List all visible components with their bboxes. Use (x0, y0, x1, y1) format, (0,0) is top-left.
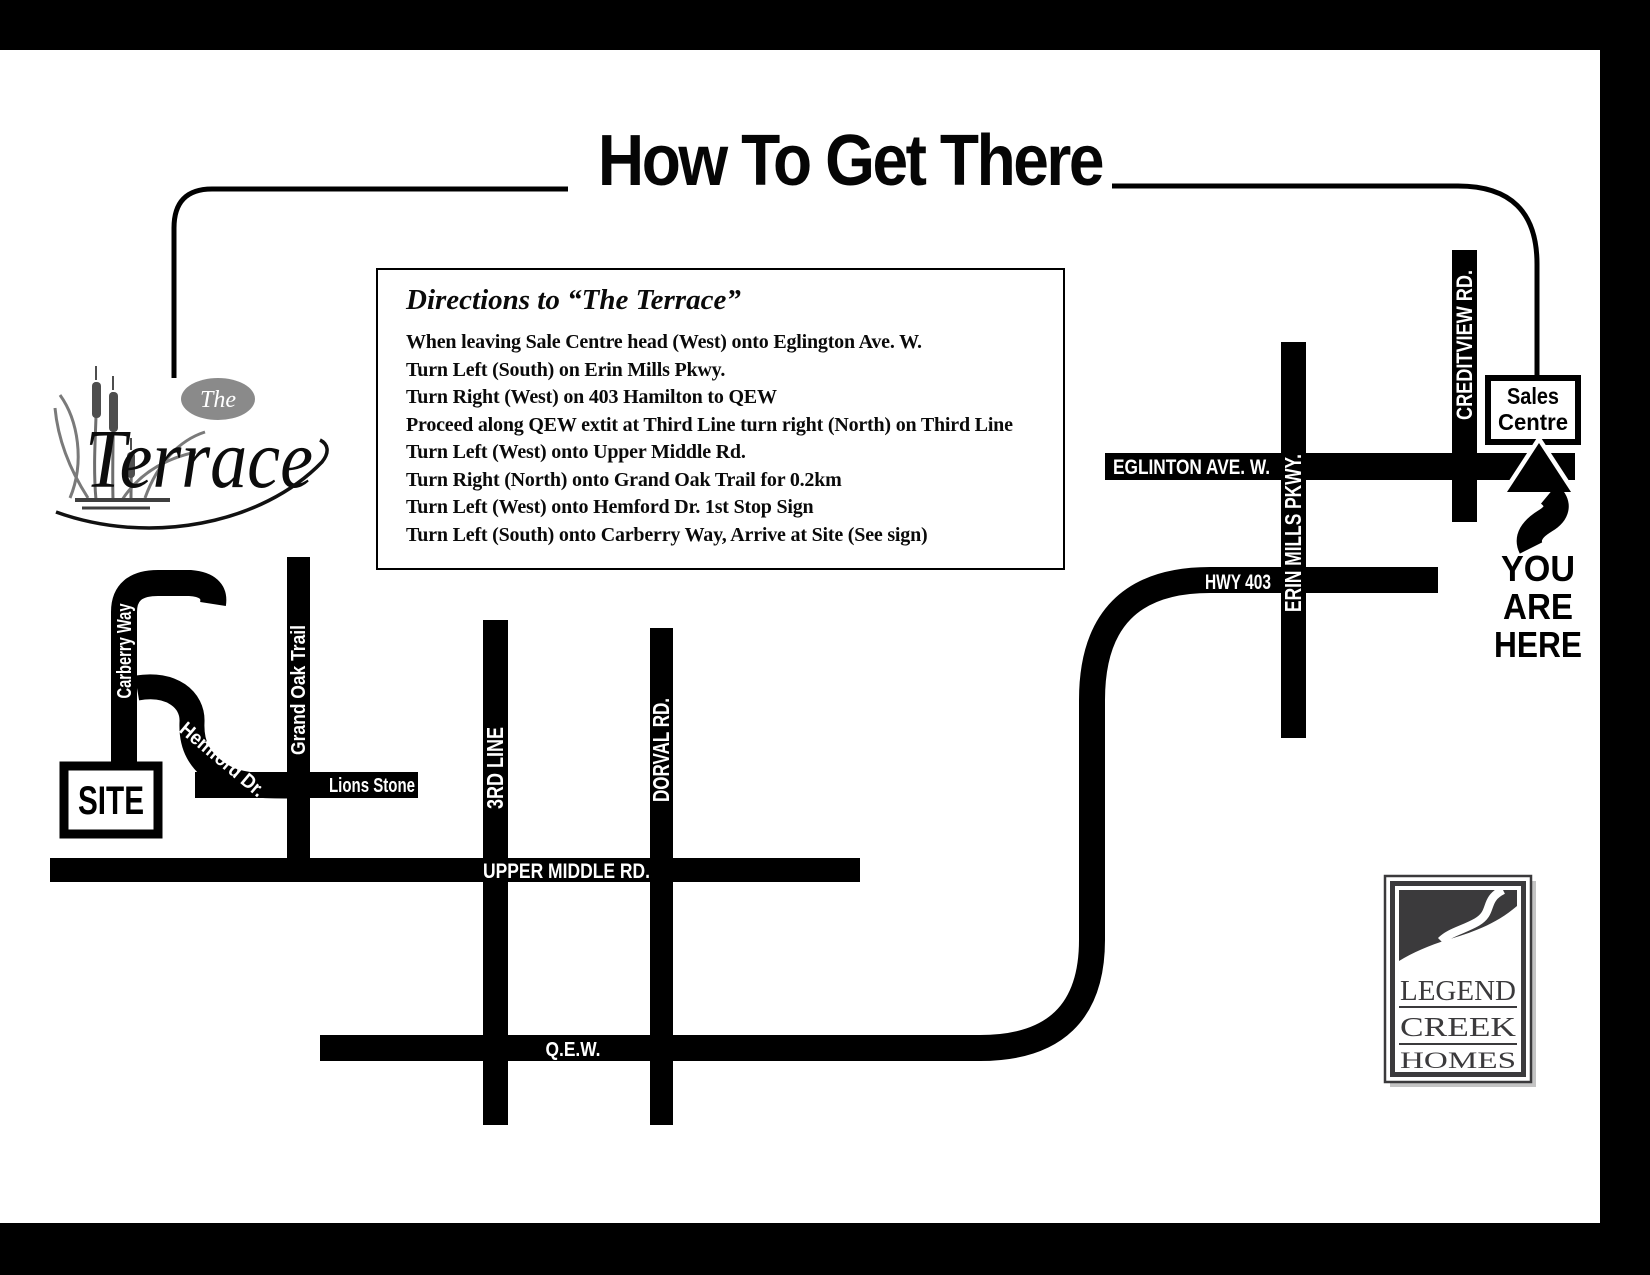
directions-list: When leaving Sale Centre head (West) ont… (406, 329, 1063, 549)
label-upper-middle: UPPER MIDDLE RD. (483, 860, 650, 883)
direction-step: Turn Right (North) onto Grand Oak Trail … (406, 467, 1063, 495)
label-grand-oak: Grand Oak Trail (288, 625, 310, 755)
label-carberry: Carberry Way (114, 603, 136, 699)
direction-step: Turn Left (South) onto Carberry Way, Arr… (406, 522, 1063, 550)
label-lions-stone: Lions Stone (329, 775, 415, 797)
builder-logo-line2: CREEK (1400, 1012, 1517, 1042)
page-title: How To Get There (549, 118, 1150, 202)
builder-logo-line3: HOMES (1400, 1048, 1516, 1073)
label-dorval: DORVAL RD. (648, 698, 674, 802)
label-creditview: CREDITVIEW RD. (1452, 270, 1477, 420)
terrace-logo-name: Terrace (85, 413, 313, 506)
label-third-line: 3RD LINE (482, 727, 508, 809)
label-hwy403: HWY 403 (1205, 571, 1271, 594)
direction-step: Turn Left (West) onto Upper Middle Rd. (406, 439, 1063, 467)
sales-centre-line2: Centre (1498, 409, 1568, 435)
directions-title: Directions to “The Terrace” (406, 284, 1063, 317)
direction-step: When leaving Sale Centre head (West) ont… (406, 329, 1063, 357)
legend-creek-logo: LEGEND CREEK HOMES (1385, 876, 1536, 1087)
you-are-here-line2: ARE (1503, 586, 1573, 627)
flyer-page: EGLINTON AVE. W. HWY 403 UPPER MIDDLE RD… (0, 0, 1650, 1275)
direction-step: Turn Left (South) on Erin Mills Pkwy. (406, 357, 1063, 385)
you-are-here-line1: YOU (1501, 548, 1575, 589)
direction-step: Turn Right (West) on 403 Hamilton to QEW (406, 384, 1063, 412)
builder-logo-line1: LEGEND (1400, 976, 1516, 1007)
site-label: SITE (78, 779, 144, 823)
label-qew: Q.E.W. (546, 1039, 601, 1061)
road-upper-middle (50, 858, 860, 882)
you-are-here-line3: HERE (1494, 624, 1582, 665)
label-eglinton: EGLINTON AVE. W. (1113, 456, 1270, 479)
directions-box: Directions to “The Terrace” When leaving… (376, 268, 1065, 570)
label-erin-mills: ERIN MILLS PKWY. (1280, 454, 1306, 612)
sales-centre-line1: Sales (1507, 383, 1559, 409)
terrace-logo-the: The (200, 387, 236, 413)
direction-step: Turn Left (West) onto Hemford Dr. 1st St… (406, 494, 1063, 522)
direction-step: Proceed along QEW extit at Third Line tu… (406, 412, 1063, 440)
